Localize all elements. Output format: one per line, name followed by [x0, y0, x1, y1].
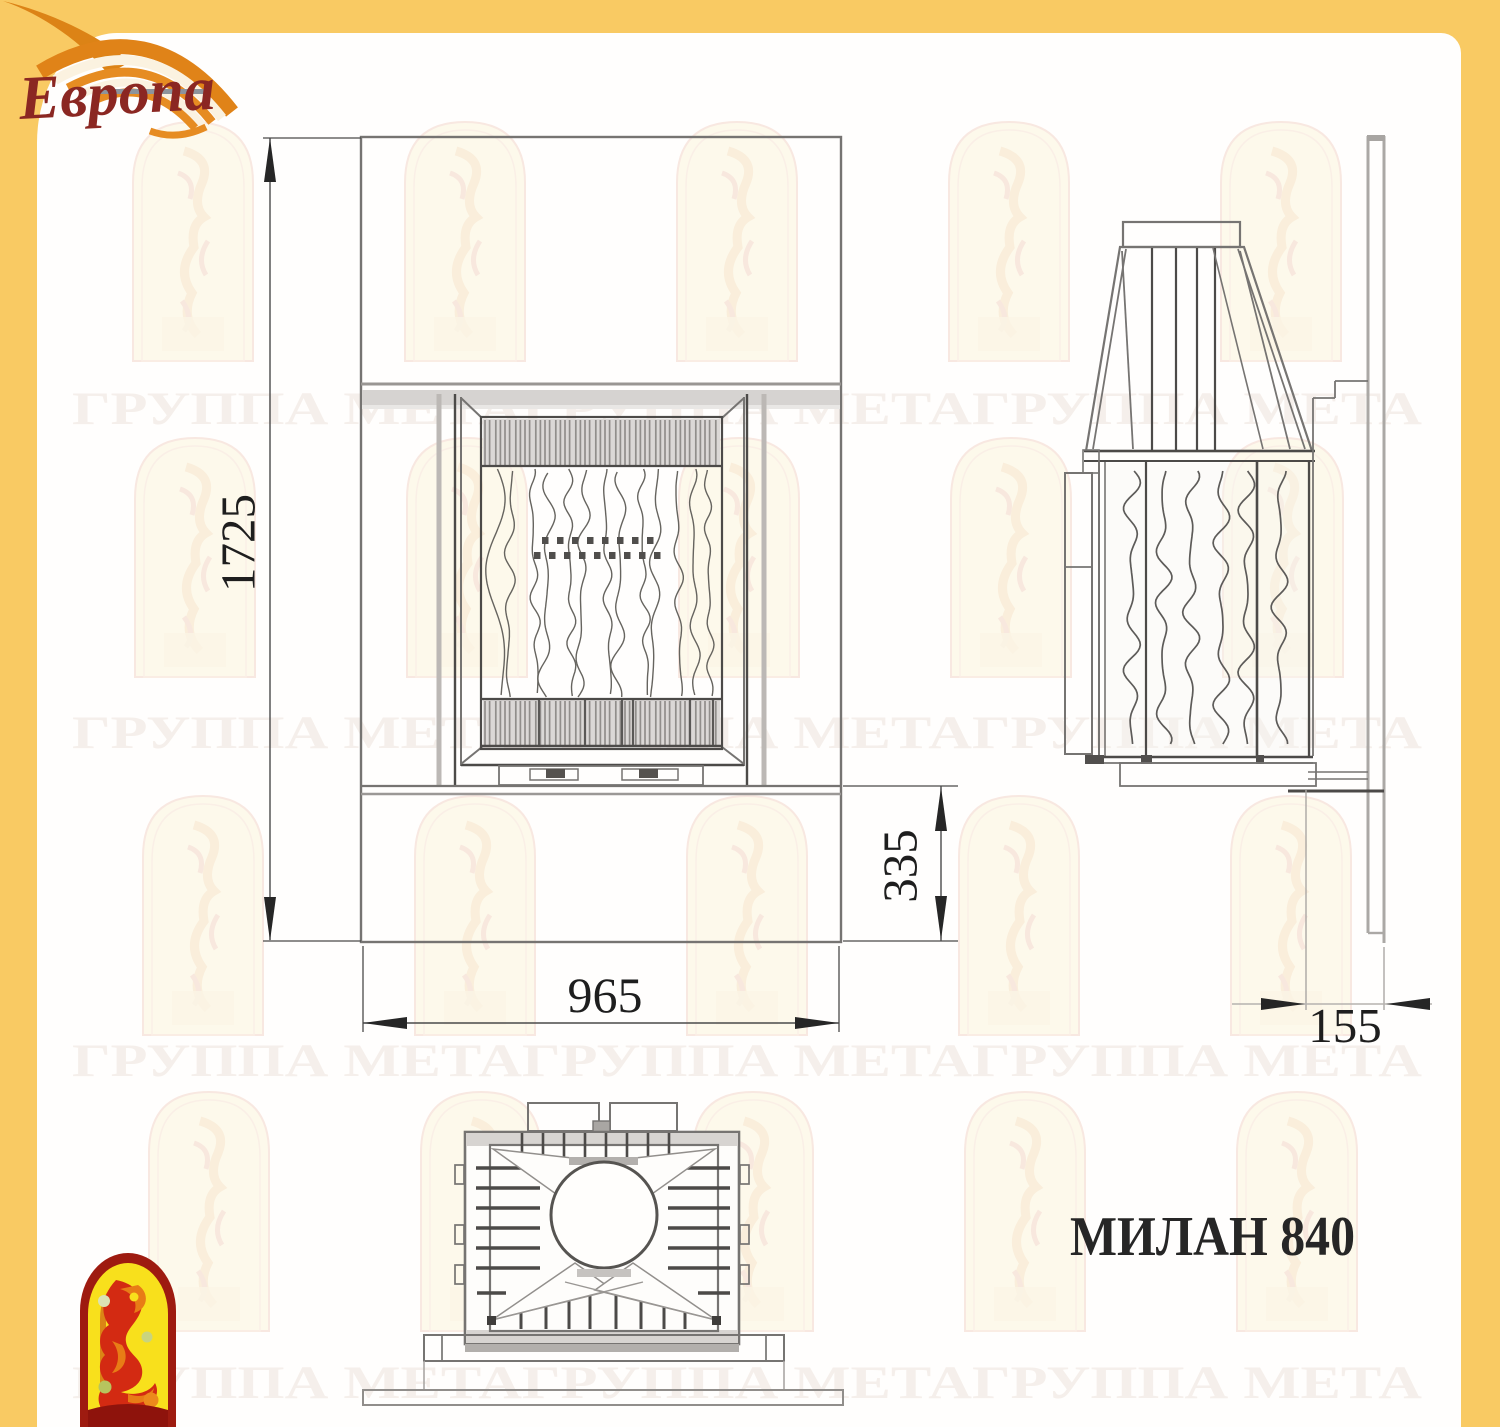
svg-text:Европа: Европа: [16, 55, 216, 133]
